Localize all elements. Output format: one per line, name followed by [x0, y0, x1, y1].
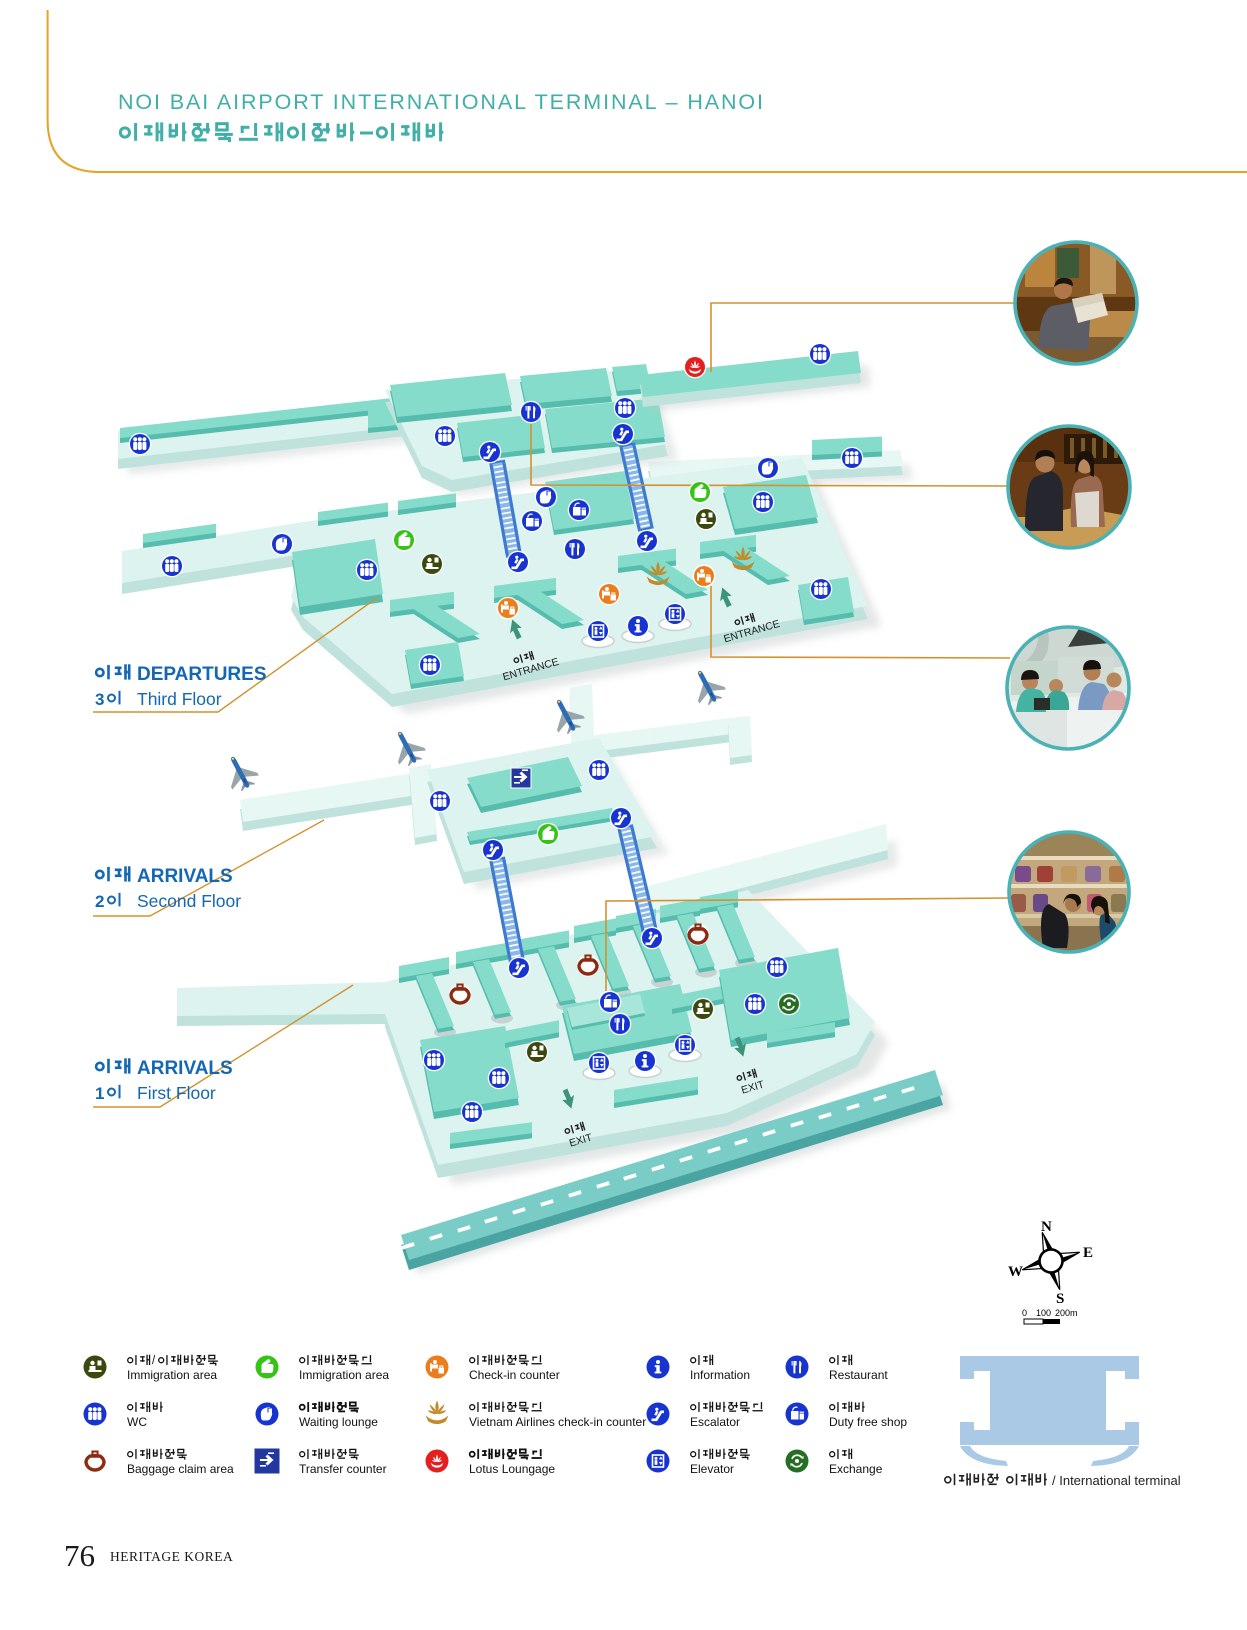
svg-text:ARRIVALS: ARRIVALS: [137, 866, 233, 887]
svg-text:Escalator: Escalator: [690, 1415, 740, 1429]
svg-text:Duty free shop: Duty free shop: [829, 1415, 907, 1429]
svg-text:/ International terminal: / International terminal: [1052, 1473, 1181, 1488]
svg-text:0: 0: [1022, 1308, 1027, 1318]
svg-text:Elevator: Elevator: [690, 1462, 734, 1476]
svg-text:WC: WC: [127, 1415, 147, 1429]
svg-text:Immigration area: Immigration area: [299, 1368, 389, 1382]
svg-text:1: 1: [95, 1084, 104, 1103]
svg-text:Lotus Loungage: Lotus Loungage: [469, 1462, 555, 1476]
svg-text:Baggage claim area: Baggage claim area: [127, 1462, 234, 1476]
svg-text:Immigration area: Immigration area: [127, 1368, 217, 1382]
svg-text:2: 2: [95, 892, 104, 911]
svg-text:Check-in counter: Check-in counter: [469, 1368, 560, 1382]
svg-text:Second Floor: Second Floor: [137, 891, 241, 911]
svg-text:NOI BAI AIRPORT INTERNATIONAL: NOI BAI AIRPORT INTERNATIONAL TERMINAL –…: [118, 90, 765, 114]
svg-text:Transfer counter: Transfer counter: [299, 1462, 387, 1476]
svg-text:E: E: [1083, 1245, 1093, 1261]
svg-text:Third Floor: Third Floor: [137, 689, 222, 709]
svg-text:3: 3: [95, 690, 104, 709]
svg-text:HERITAGE KOREA: HERITAGE KOREA: [110, 1549, 233, 1564]
svg-text:76: 76: [64, 1538, 95, 1573]
svg-text:S: S: [1056, 1291, 1064, 1307]
svg-text:Restaurant: Restaurant: [829, 1368, 888, 1382]
svg-text:Information: Information: [690, 1368, 750, 1382]
svg-text:100: 100: [1036, 1308, 1051, 1318]
svg-text:W: W: [1008, 1264, 1023, 1280]
svg-text:200m: 200m: [1055, 1308, 1078, 1318]
svg-text:Waiting lounge: Waiting lounge: [299, 1415, 378, 1429]
svg-text:DEPARTURES: DEPARTURES: [137, 664, 267, 685]
svg-text:Vietnam Airlines check-in coun: Vietnam Airlines check-in counter: [469, 1415, 646, 1429]
svg-text:N: N: [1041, 1219, 1052, 1235]
svg-text:ARRIVALS: ARRIVALS: [137, 1058, 233, 1079]
svg-text:First Floor: First Floor: [137, 1083, 216, 1103]
svg-text:Exchange: Exchange: [829, 1462, 883, 1476]
